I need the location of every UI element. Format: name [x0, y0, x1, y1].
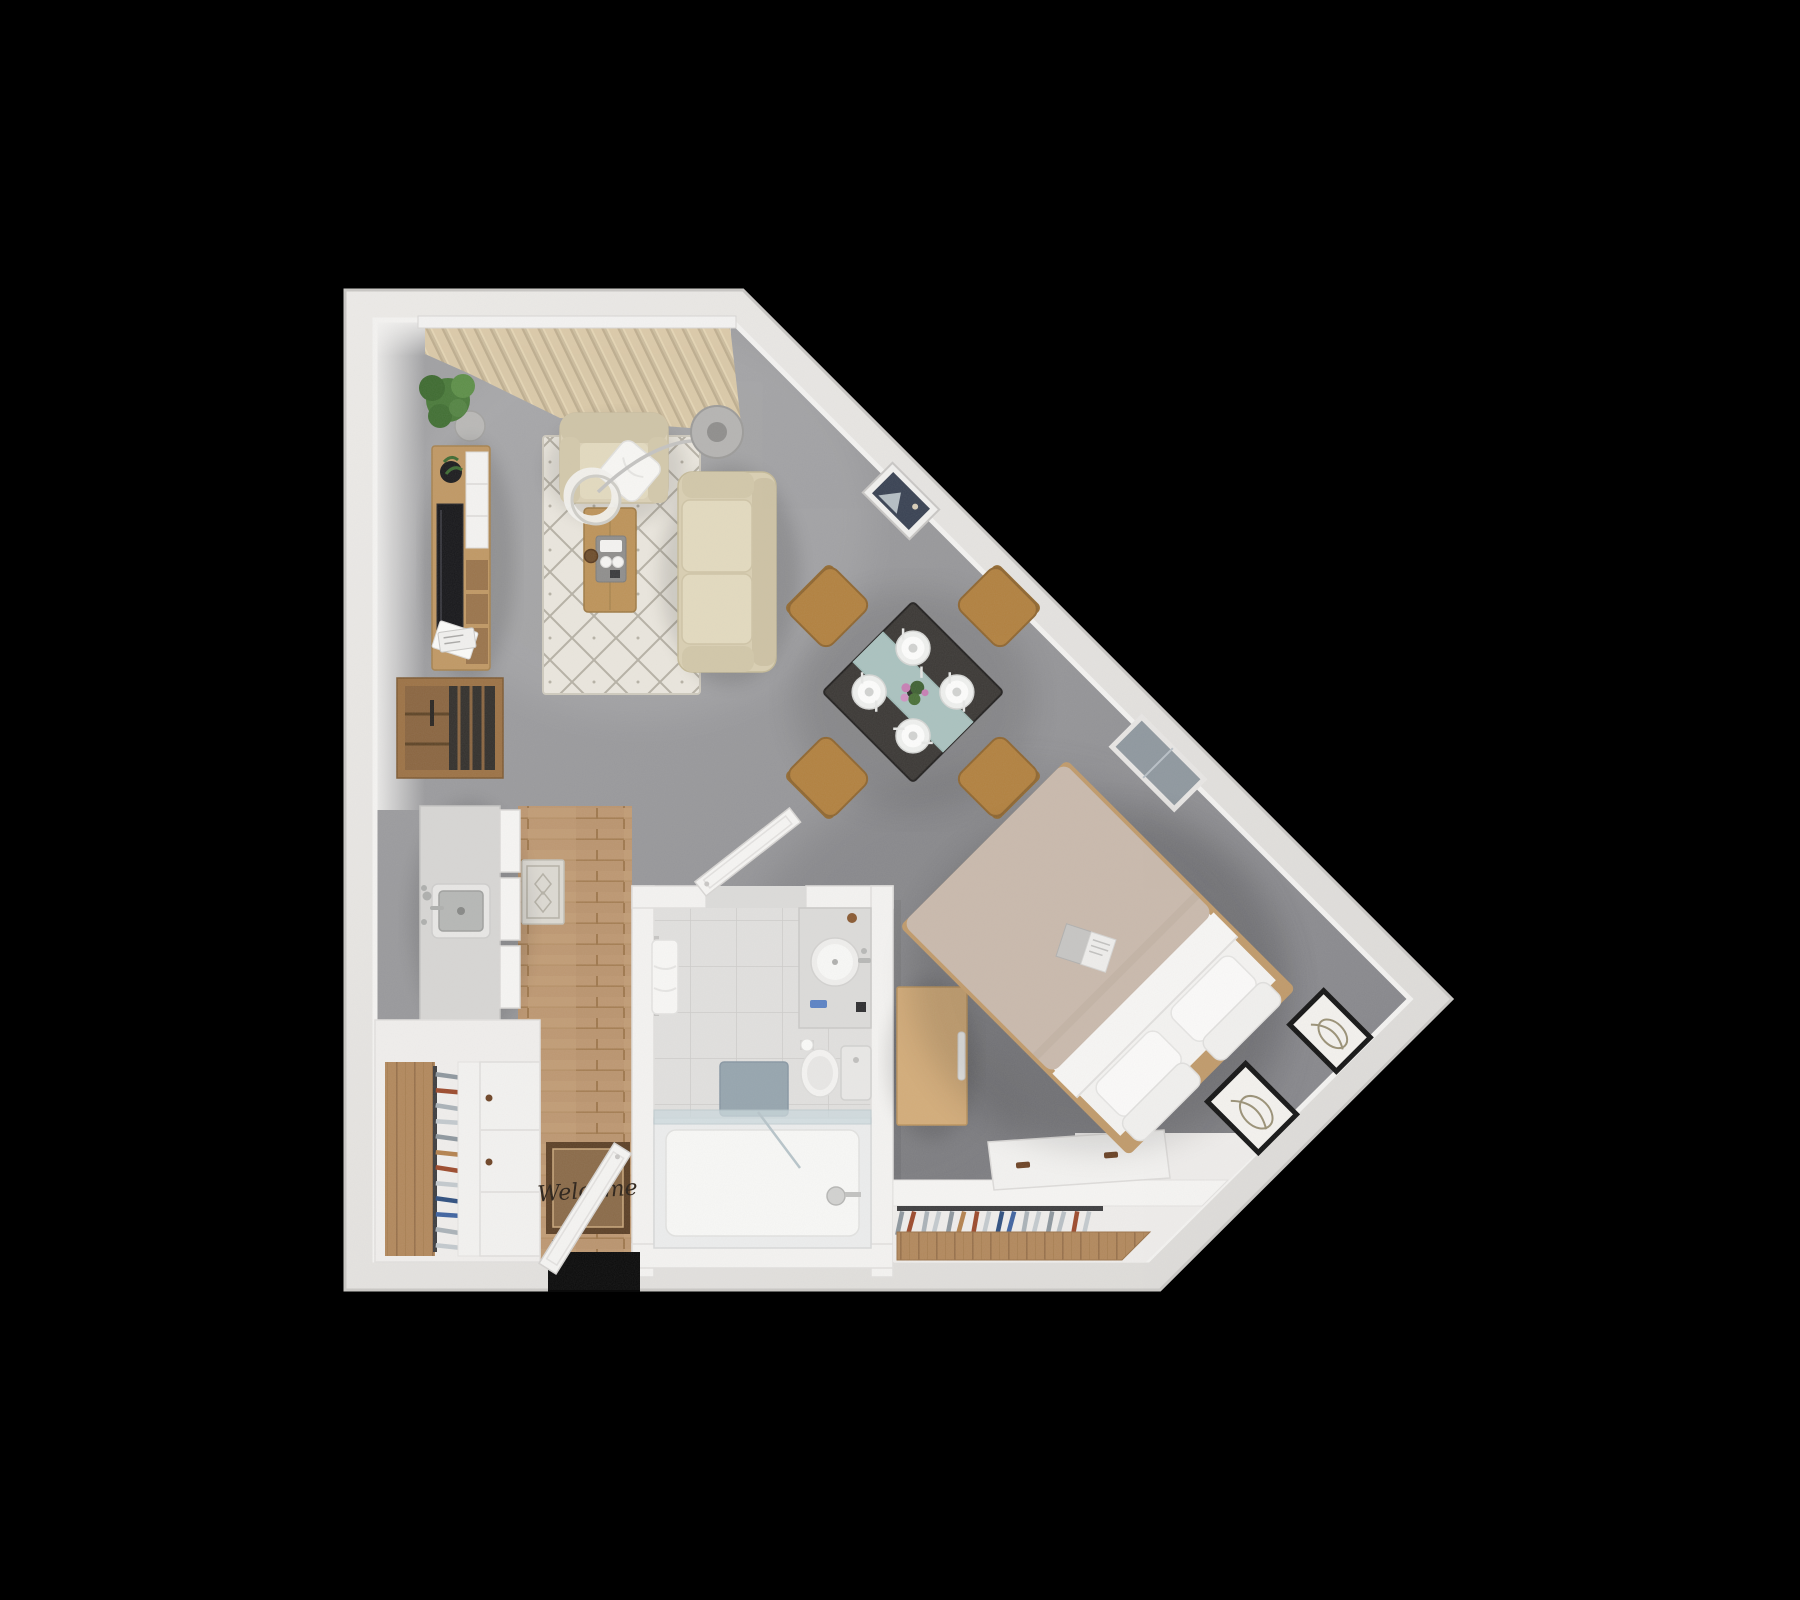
texture-grain-overlay	[300, 250, 1500, 1350]
floor-plan-svg: Welcome	[0, 0, 1800, 1600]
floor-plan-canvas: Welcome	[0, 0, 1800, 1600]
